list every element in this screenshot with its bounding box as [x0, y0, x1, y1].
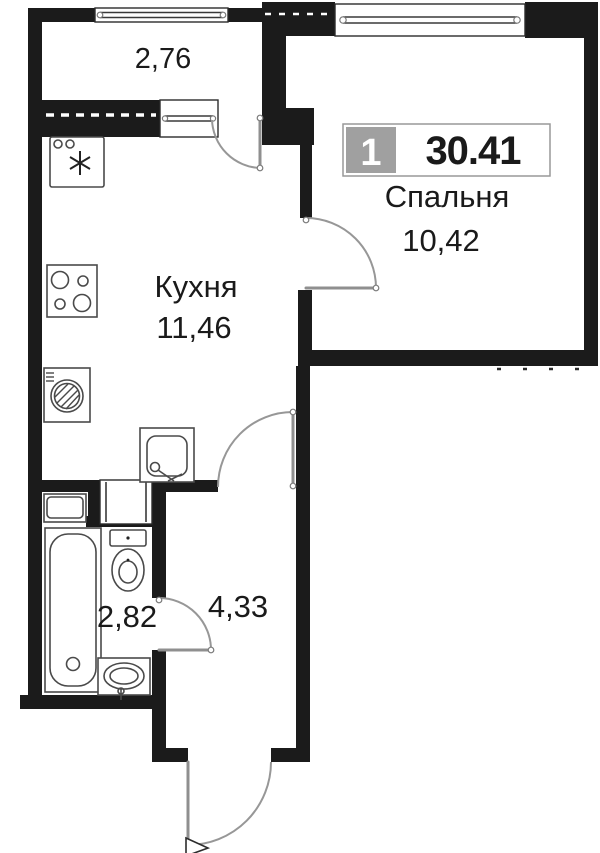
bathroom-door: [156, 597, 214, 653]
badge-total-area: 30.41: [425, 129, 521, 173]
wall-bedroom-bottom: [298, 350, 598, 366]
wall-bedroom-top-left: [262, 2, 335, 36]
wall-balcony-top-left: [28, 8, 95, 22]
wall-entrance-right: [271, 748, 310, 762]
bedroom-name-label: Спальня: [385, 179, 510, 214]
kitchen-sink-icon: [140, 428, 194, 482]
bathroom-cabinet: [44, 494, 86, 522]
wall-entrance-left: [152, 748, 188, 762]
wall-kitchen-bedroom-lower: [298, 290, 312, 350]
wall-balcony-sill: [42, 100, 160, 137]
entrance-door: [186, 762, 271, 853]
balcony-area-label: 2,76: [135, 43, 191, 75]
bedroom-area-label: 10,42: [402, 223, 480, 258]
wall-divider-foot: [286, 108, 314, 145]
kitchen-name-label: Кухня: [155, 269, 238, 304]
kitchen-area-label: 11,46: [156, 310, 231, 345]
walls: [20, 2, 598, 762]
fridge-icon: [50, 137, 104, 187]
wall-bathroom-bottom: [20, 695, 166, 709]
kitchen-door: [218, 409, 296, 489]
badge-rooms-count: 1: [360, 132, 381, 174]
bedroom-window: [335, 4, 525, 36]
toilet-icon: [110, 530, 146, 591]
balcony-door: [212, 115, 263, 171]
area-badge: 1 30.41: [343, 124, 550, 176]
wall-balcony-top-right: [228, 8, 262, 22]
bedroom-door: [303, 217, 379, 291]
entrance-arrow-icon: [186, 838, 208, 853]
bathtub-icon: [45, 528, 101, 692]
floorplan: 1 30.41 2,76 Спальня 10,42 Кухня 11,46 4…: [0, 0, 600, 853]
wall-kitchen-bedroom-upper: [300, 145, 312, 218]
wall-kitchen-south-left: [42, 480, 88, 492]
wall-hallway-east: [296, 366, 310, 762]
bathroom-sink-icon: [98, 658, 150, 700]
wall-bathroom-east-upper: [152, 480, 166, 598]
vent-shaft: [100, 480, 152, 524]
wall-left: [28, 8, 42, 709]
wall-bedroom-right: [584, 2, 598, 366]
stove-icon: [47, 265, 97, 317]
bathroom-area-label: 2,82: [97, 599, 157, 634]
washing-machine-icon: [44, 368, 90, 422]
hallway-area-label: 4,33: [208, 589, 268, 624]
wall-lower-hallway-west: [152, 709, 166, 750]
balcony-door-window: [160, 100, 218, 137]
balcony-window: [95, 8, 228, 22]
floorplan-svg: 1 30.41 2,76 Спальня 10,42 Кухня 11,46 4…: [0, 0, 600, 853]
